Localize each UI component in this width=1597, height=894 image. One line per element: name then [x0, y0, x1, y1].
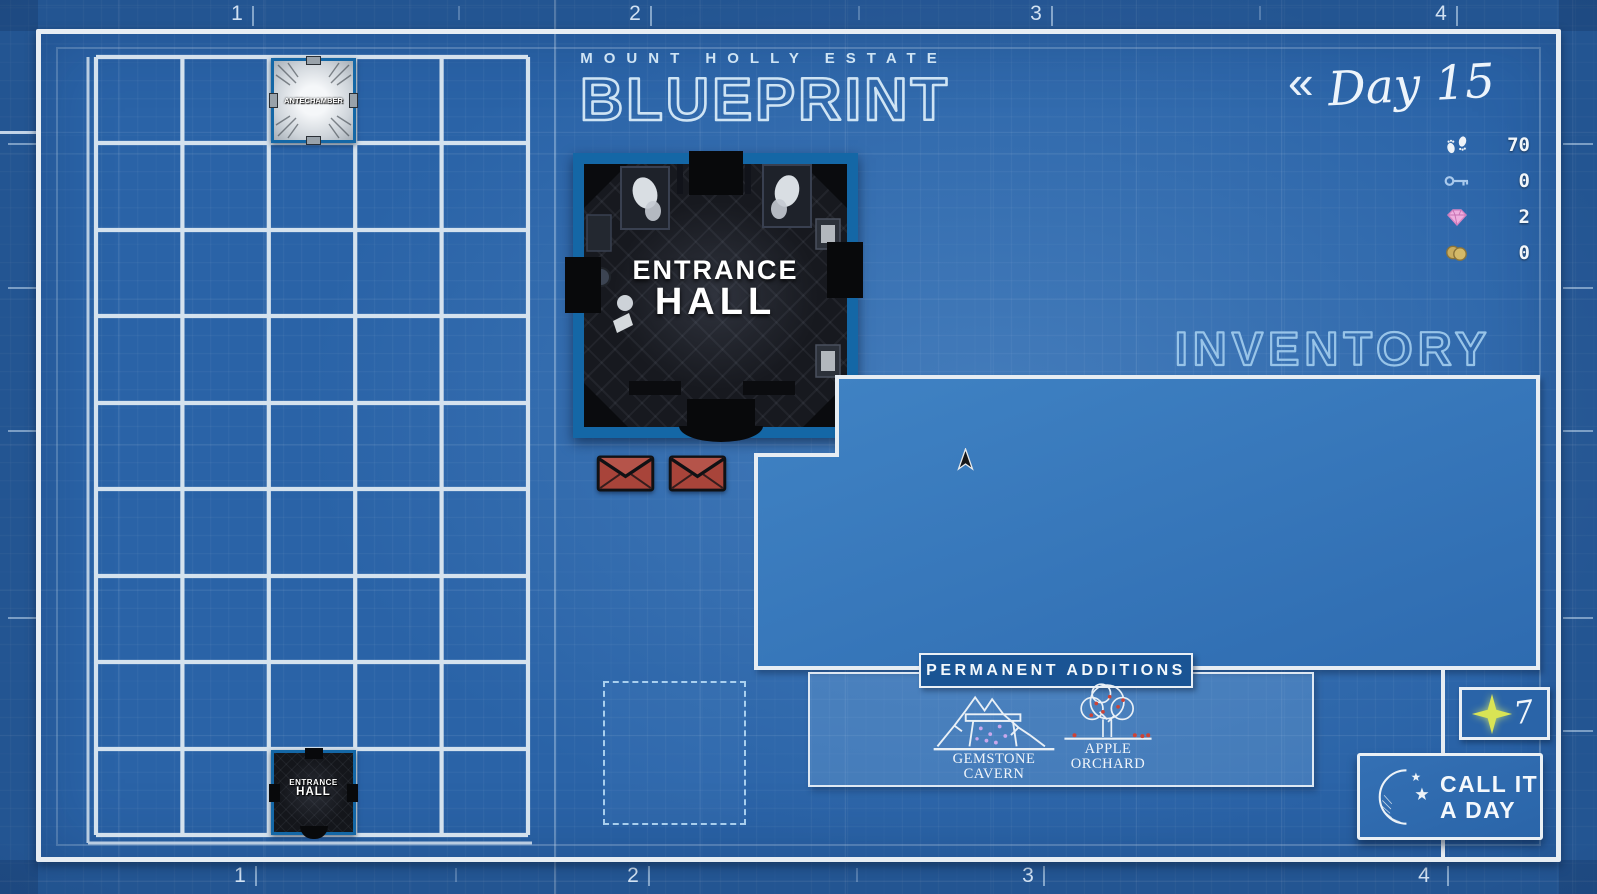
ruler-tick-right [1563, 287, 1593, 289]
ruler-tick [255, 866, 257, 886]
ruler-bottom-4: 4 [1418, 864, 1430, 888]
door-opening [305, 748, 323, 759]
footprints-icon [1444, 132, 1470, 158]
blueprint-screen: 1 2 3 4 1 2 3 4 [0, 0, 1597, 894]
ruler-tick [1051, 6, 1053, 26]
ruler-tick-left [8, 287, 36, 289]
door-notch [306, 56, 321, 65]
day-badge[interactable]: « Day 15 [1288, 56, 1528, 128]
resource-coins: 0 [1444, 238, 1530, 268]
svg-text:INVENTORY: INVENTORY [1175, 322, 1492, 375]
ruler-tick-right [1563, 730, 1593, 732]
label-line1: CALL IT [1440, 771, 1538, 797]
label-line1: APPLE [1071, 742, 1145, 757]
ruler-bottom-2: 2 [627, 864, 639, 888]
mail-envelope-2[interactable] [668, 455, 727, 492]
ruler-top-4: 4 [1435, 2, 1447, 26]
gemstone-cavern-icon [926, 686, 1062, 752]
label-line2: A DAY [1440, 797, 1538, 823]
estate-room-grid [80, 49, 536, 851]
ruler-tick [650, 6, 652, 26]
ruler-tick-right [1563, 617, 1593, 619]
ruler-tick [1456, 6, 1458, 26]
room-placement-slot[interactable] [603, 681, 746, 825]
addition-gemstone-cavern: GEMSTONE CAVERN [926, 686, 1062, 782]
ruler-midtick [455, 868, 457, 882]
label-line2: ORCHARD [1071, 757, 1145, 772]
entrance-hall-small-label: ENTRANCE HALL [274, 778, 353, 798]
day-label: Day 15 [1326, 52, 1496, 121]
gems-count: 2 [1519, 206, 1530, 228]
coin-icon [1444, 244, 1470, 262]
previous-day-arrow-icon[interactable]: « [1288, 56, 1314, 108]
keys-count: 0 [1519, 170, 1530, 192]
ruler-midtick [856, 868, 858, 882]
map-room-antechamber[interactable]: ANTECHAMBER [271, 58, 356, 143]
apple-orchard-icon [1052, 680, 1164, 742]
ruler-top-2: 2 [629, 2, 641, 26]
steps-count: 70 [1507, 134, 1530, 156]
ruler-midtick [458, 6, 460, 20]
addition-apple-orchard: APPLE ORCHARD [1052, 680, 1164, 772]
ruler-bottom-3: 3 [1022, 864, 1034, 888]
ruler-top-3: 3 [1030, 2, 1042, 26]
ruler-tick-left [8, 617, 36, 619]
key-icon [1444, 173, 1470, 189]
spirit-counter: 7 [1459, 687, 1550, 740]
label-line1: GEMSTONE [953, 752, 1036, 767]
ruler-tick [252, 6, 254, 26]
antechamber-label: ANTECHAMBER [274, 96, 353, 105]
ruler-tick [648, 866, 650, 886]
spirit-count: 7 [1512, 694, 1537, 732]
room-name-line2: HALL [584, 284, 847, 320]
svg-text:BLUEPRINT: BLUEPRINT [580, 66, 950, 133]
gemstone-cavern-label: GEMSTONE CAVERN [953, 752, 1036, 782]
label-line2: HALL [274, 786, 353, 798]
moon-icon [1372, 764, 1434, 830]
sparkle-icon [1470, 692, 1514, 736]
ruler-tick-left [8, 143, 36, 145]
ruler-tick-right [1563, 430, 1593, 432]
ruler-midtick [858, 6, 860, 20]
apple-orchard-label: APPLE ORCHARD [1071, 742, 1145, 772]
game-cursor-icon [957, 448, 974, 471]
inventory-panel[interactable] [750, 371, 1546, 674]
ruler-tick-right [1563, 143, 1593, 145]
door-notch [306, 136, 321, 145]
coins-count: 0 [1519, 242, 1530, 264]
ruler-tick-left [8, 430, 36, 432]
ruler-top-1: 1 [231, 2, 243, 26]
blueprint-title: BLUEPRINT [545, 64, 985, 136]
resource-gems: 2 [1444, 202, 1530, 232]
ruler-bottom-1: 1 [234, 864, 246, 888]
room-name-line1: ENTRANCE [584, 256, 847, 284]
call-it-a-day-button[interactable]: CALL IT A DAY [1357, 753, 1543, 840]
map-room-entrance-hall[interactable]: ENTRANCE HALL [271, 750, 356, 835]
ruler-tick [1043, 866, 1045, 886]
gem-icon [1444, 208, 1470, 227]
label-line2: CAVERN [953, 767, 1036, 782]
ruler-tick [1447, 866, 1449, 886]
resource-steps: 70 [1444, 130, 1530, 160]
inventory-title: INVENTORY [1128, 320, 1538, 378]
resource-keys: 0 [1444, 166, 1530, 196]
door-top [689, 151, 743, 195]
room-preview-label: ENTRANCE HALL [584, 256, 847, 320]
call-it-a-day-label: CALL IT A DAY [1440, 771, 1538, 823]
ruler-midtick [1259, 6, 1261, 20]
door-bottom [687, 399, 755, 429]
mail-envelope-1[interactable] [596, 455, 655, 492]
